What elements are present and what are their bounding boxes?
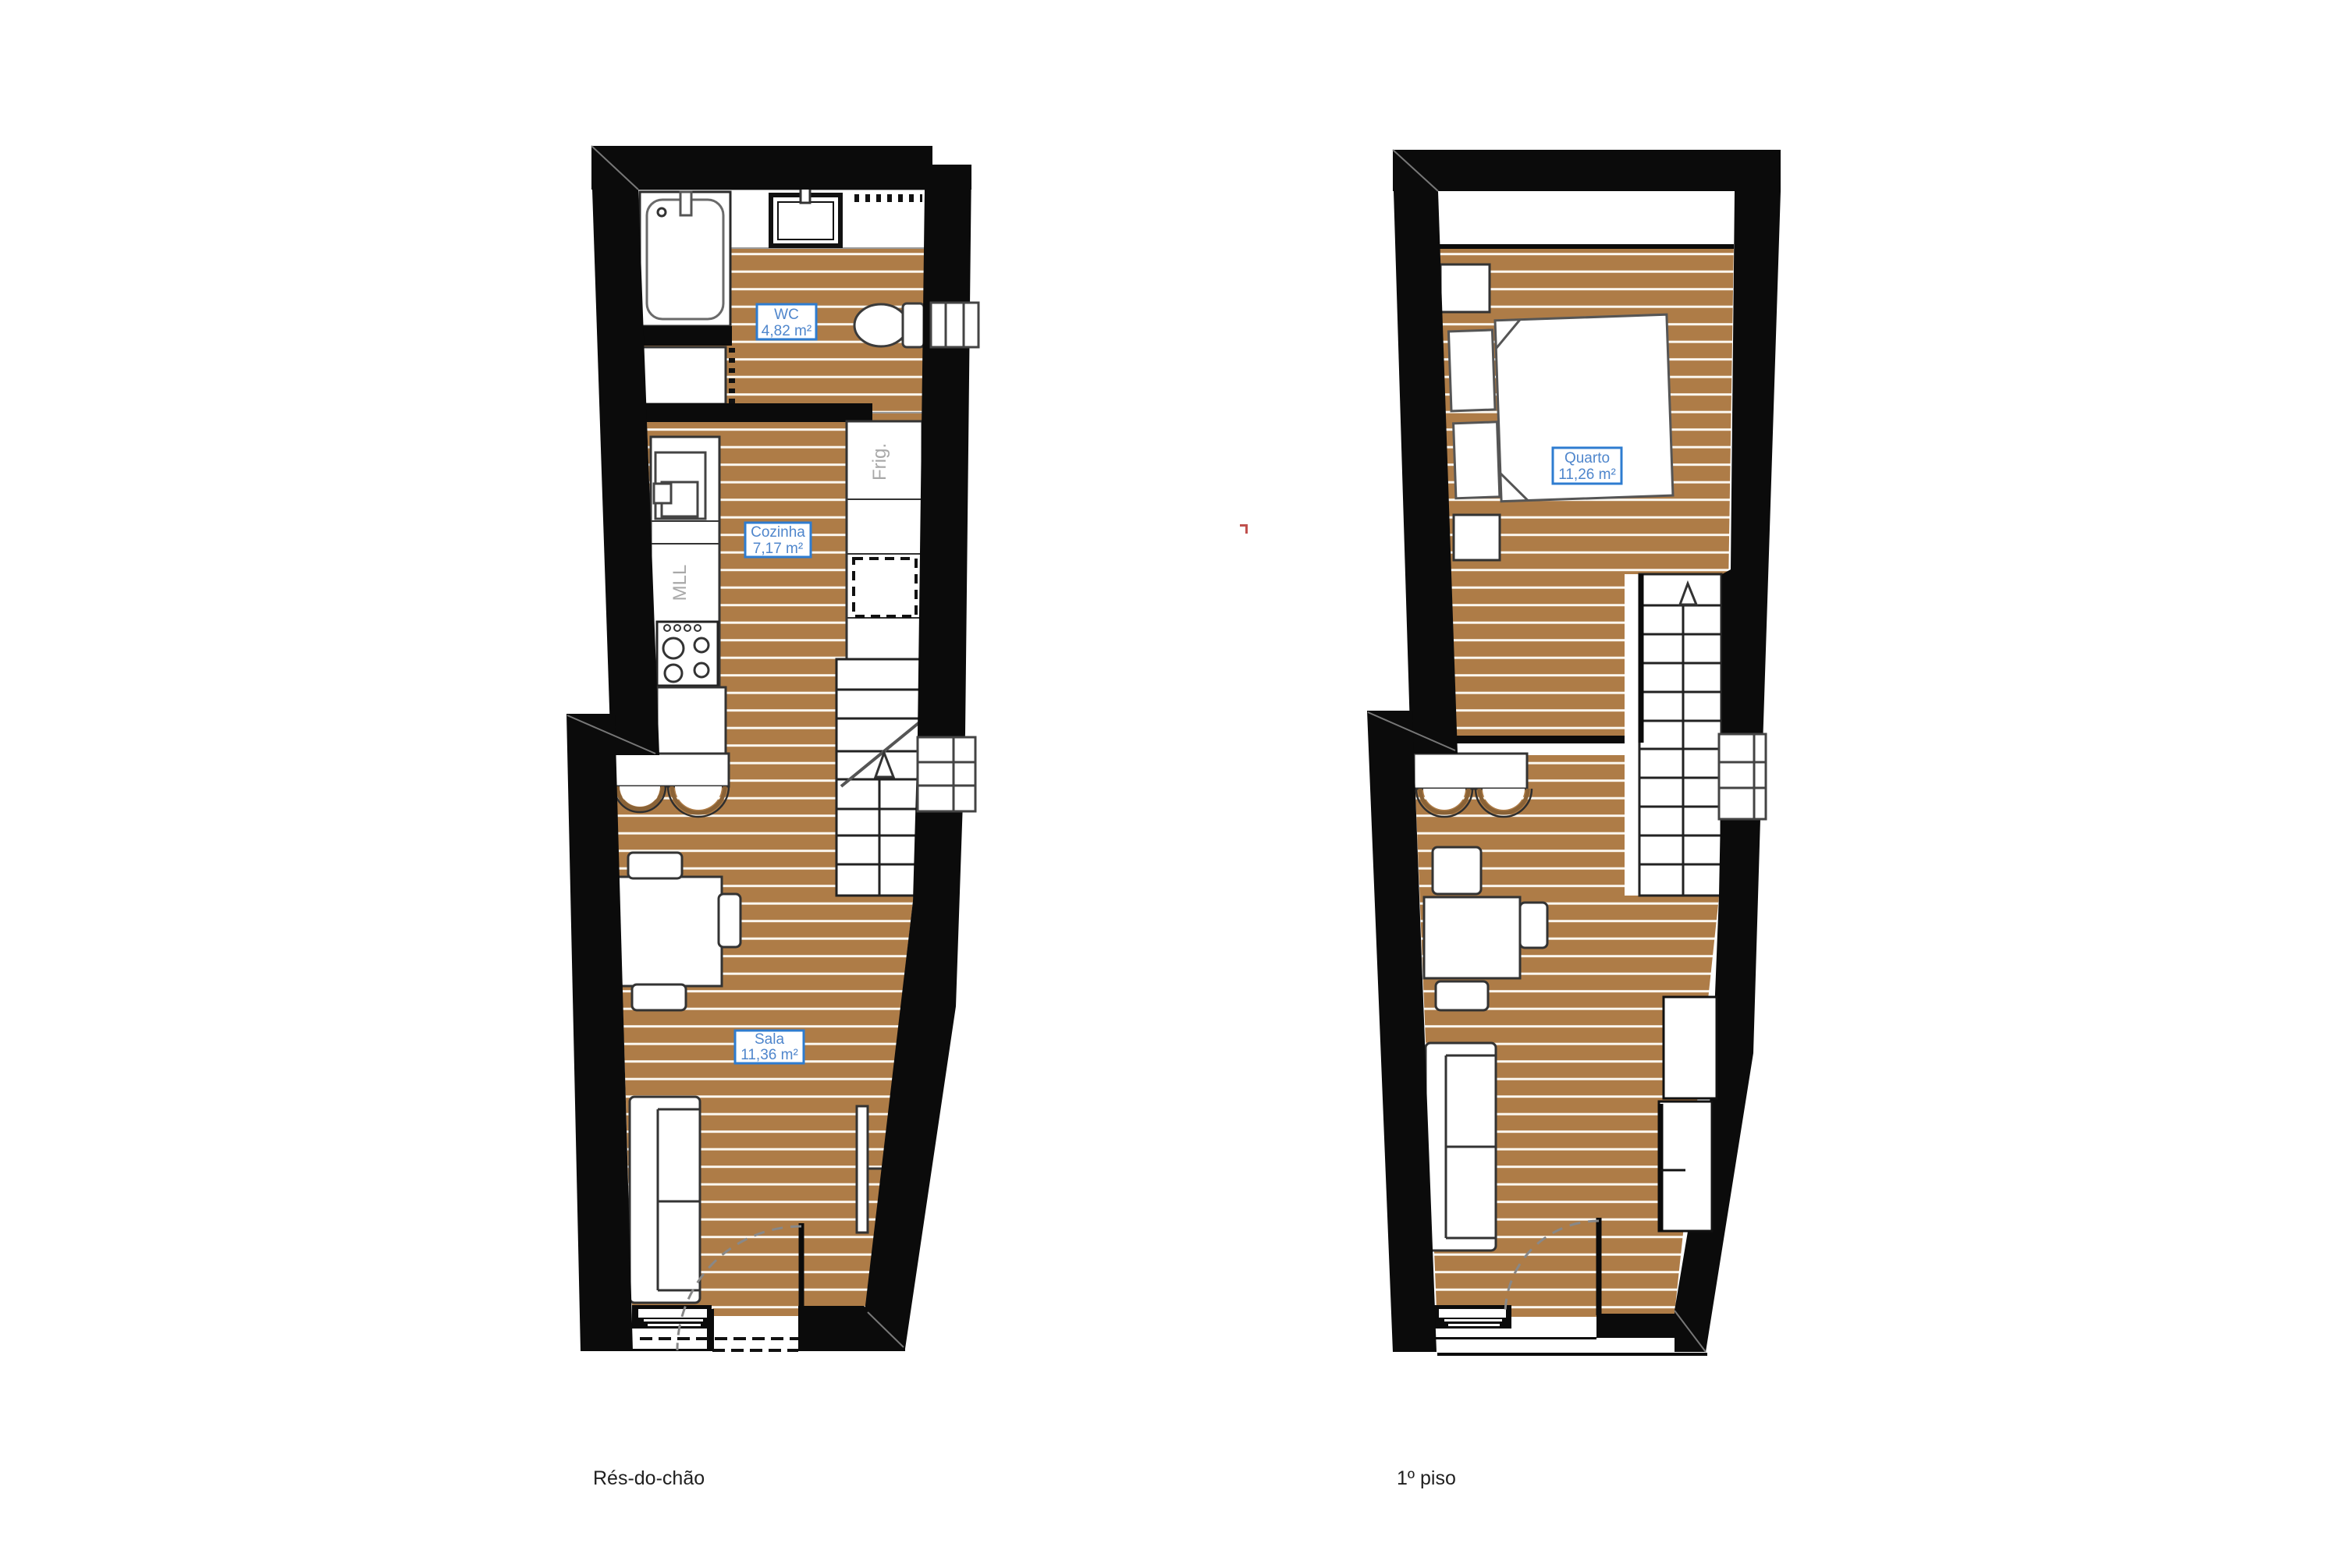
svg-text:Rés-do-chão: Rés-do-chão [593, 1467, 705, 1489]
svg-text:11,26 m²: 11,26 m² [1558, 466, 1616, 483]
svg-text:Cozinha: Cozinha [751, 524, 805, 541]
svg-text:4,82 m²: 4,82 m² [762, 323, 812, 339]
svg-text:Sala: Sala [755, 1031, 784, 1048]
svg-text:Quarto: Quarto [1564, 450, 1610, 466]
svg-text:Frig.: Frig. [869, 443, 890, 481]
svg-text:7,17 m²: 7,17 m² [753, 541, 803, 557]
svg-text:11,36 m²: 11,36 m² [740, 1047, 798, 1063]
svg-text:WC: WC [774, 307, 799, 323]
svg-text:MLL: MLL [669, 565, 691, 601]
svg-text:1º piso: 1º piso [1397, 1467, 1456, 1489]
